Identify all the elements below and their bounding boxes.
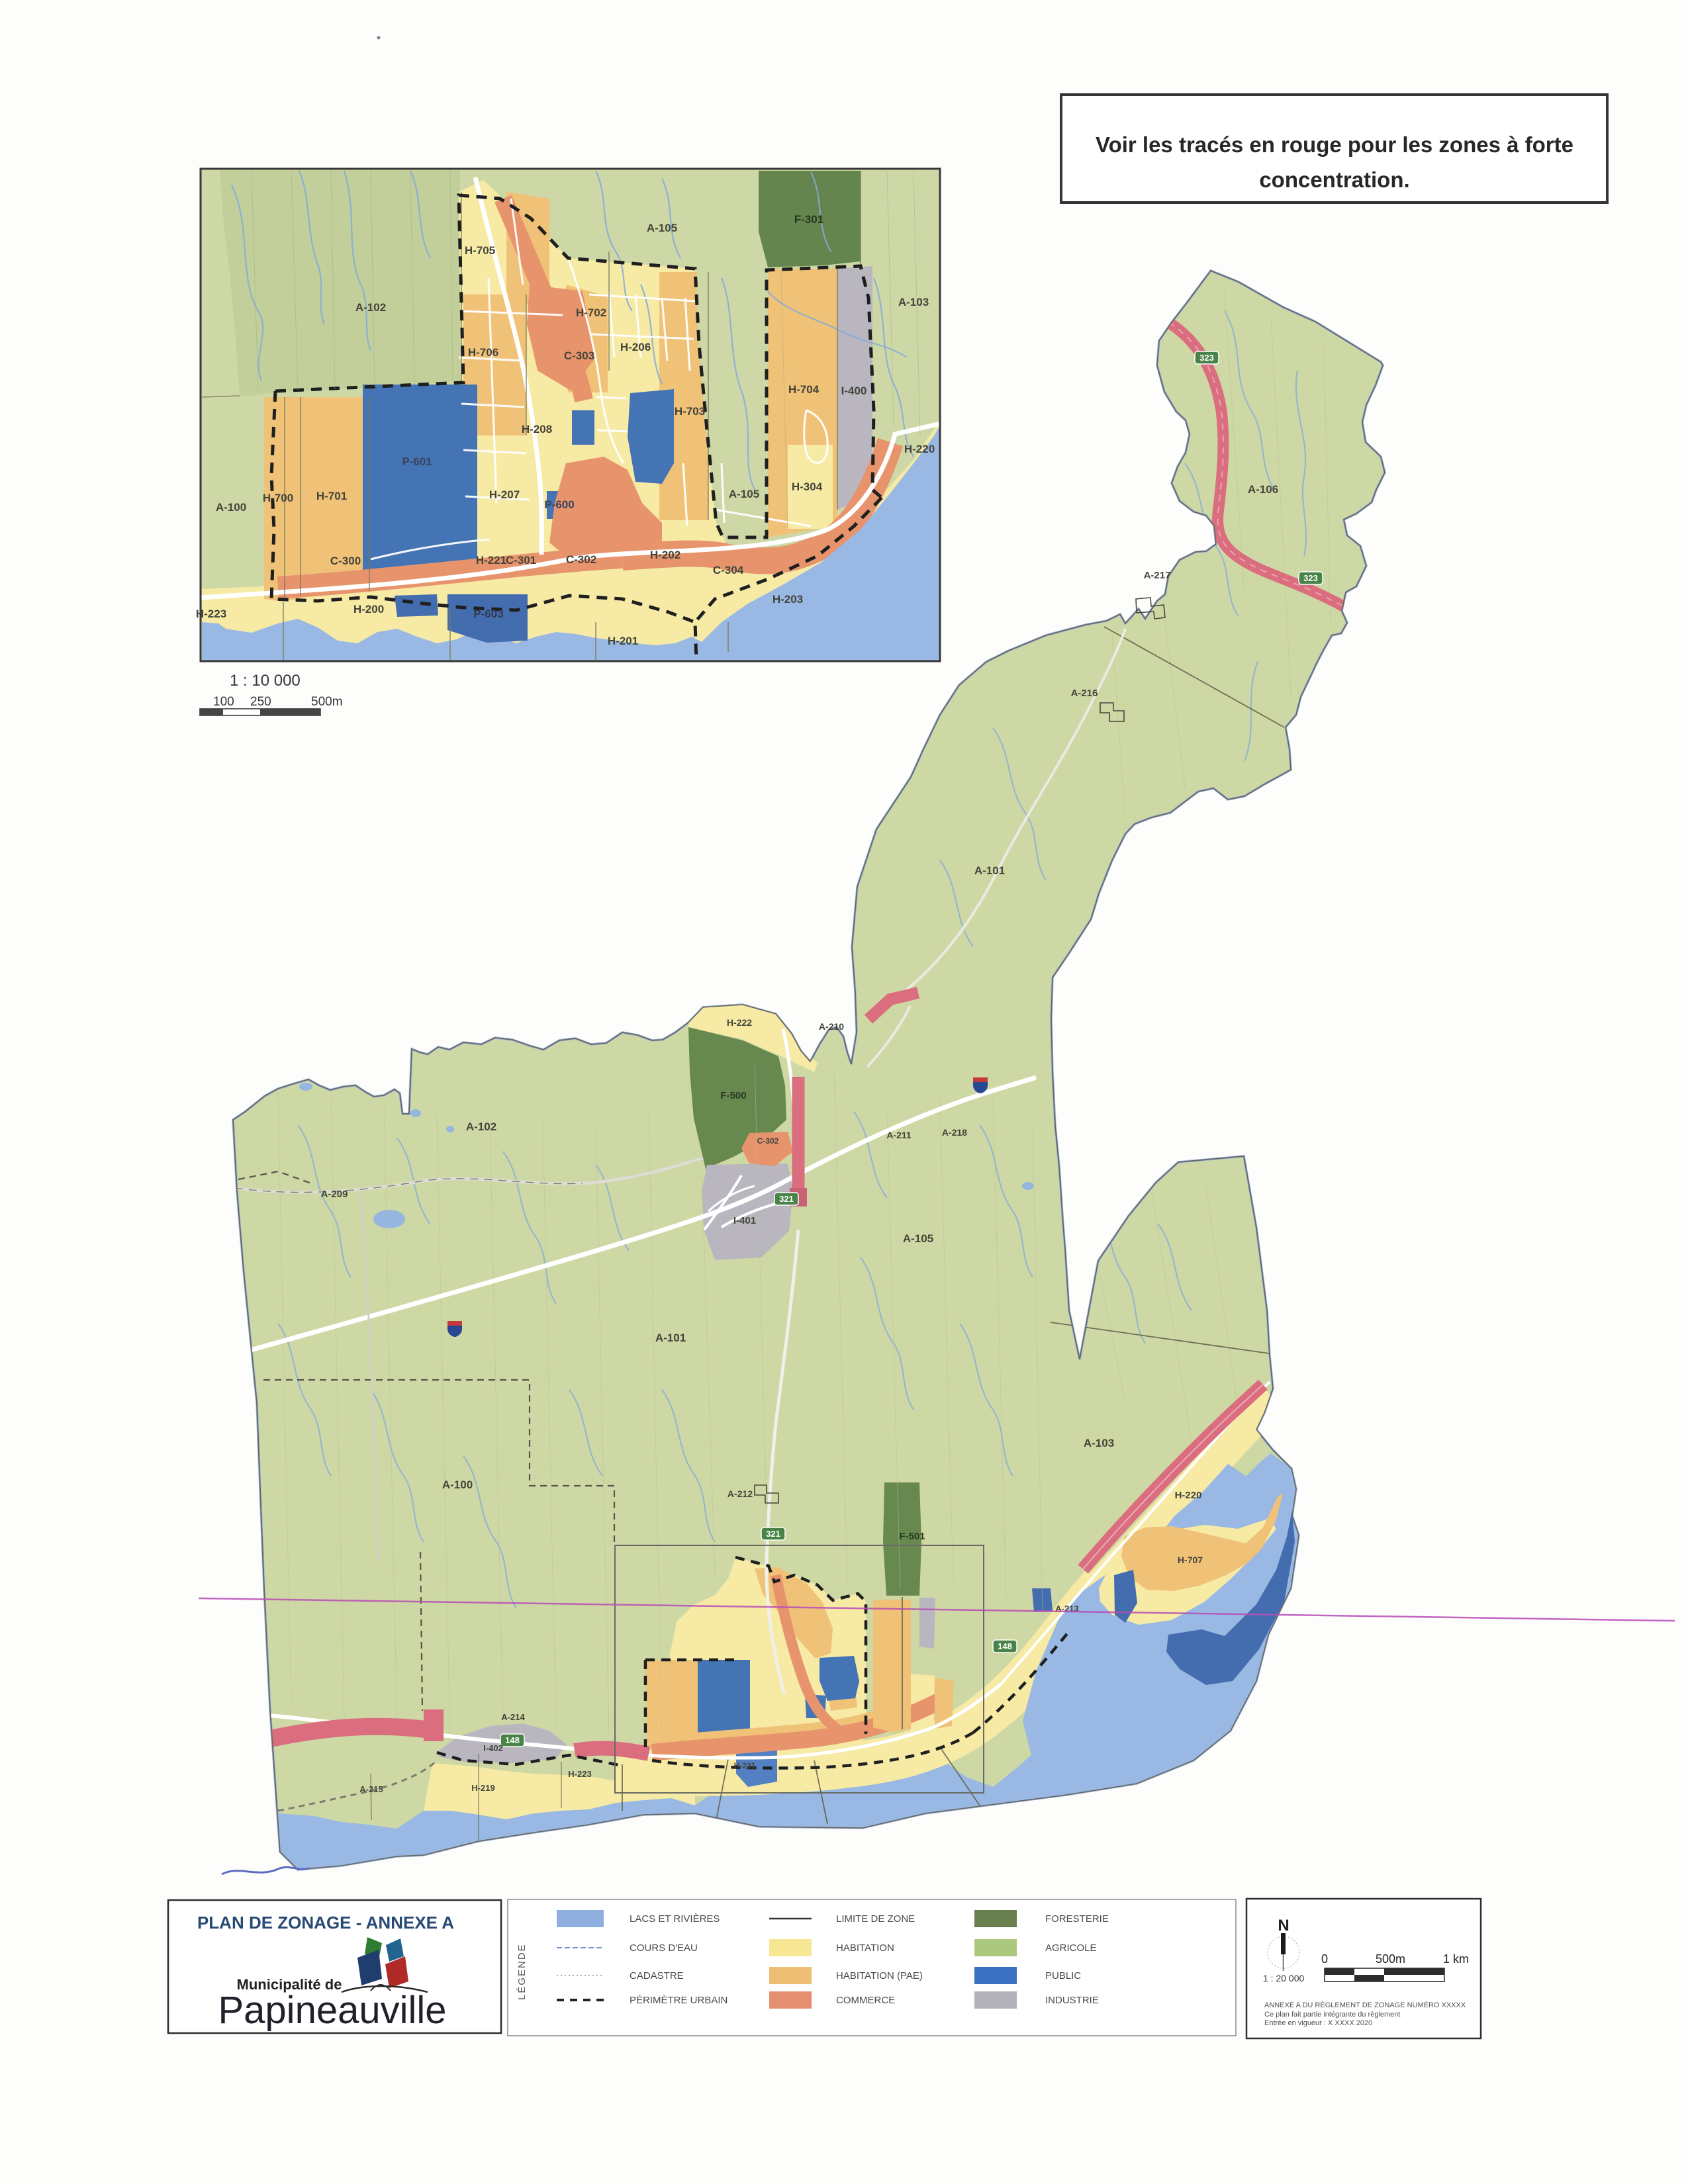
svg-text:N: N	[1278, 1917, 1289, 1934]
svg-text:0: 0	[1321, 1952, 1328, 1966]
svg-text:1 : 20 000: 1 : 20 000	[1263, 1973, 1304, 1983]
svg-text:CADASTRE: CADASTRE	[630, 1970, 684, 1981]
svg-text:LÉGENDE: LÉGENDE	[516, 1943, 528, 2000]
svg-text:HABITATION: HABITATION	[836, 1942, 894, 1954]
svg-text:LACS ET RIVIÈRES: LACS ET RIVIÈRES	[630, 1913, 720, 1925]
svg-text:FORESTERIE: FORESTERIE	[1045, 1913, 1109, 1925]
svg-text:PLAN DE ZONAGE - ANNEXE A: PLAN DE ZONAGE - ANNEXE A	[197, 1913, 454, 1933]
svg-text:COURS D'EAU: COURS D'EAU	[630, 1942, 698, 1954]
svg-text:INDUSTRIE: INDUSTRIE	[1045, 1995, 1099, 2006]
svg-text:PÉRIMÈTRE URBAIN: PÉRIMÈTRE URBAIN	[630, 1995, 727, 2006]
svg-text:PUBLIC: PUBLIC	[1045, 1970, 1081, 1981]
svg-text:Entrée en vigueur : X XXXX 202: Entrée en vigueur : X XXXX 2020	[1264, 2019, 1372, 2027]
svg-text:LIMITE DE ZONE: LIMITE DE ZONE	[836, 1913, 915, 1925]
svg-text:Ce plan fait partie intégrante: Ce plan fait partie intégrante du règlem…	[1264, 2011, 1400, 2019]
svg-text:HABITATION (PAE): HABITATION (PAE)	[836, 1970, 923, 1981]
svg-text:AGRICOLE: AGRICOLE	[1045, 1942, 1097, 1954]
svg-text:Papineauville: Papineauville	[218, 1989, 446, 2032]
svg-text:1 km: 1 km	[1443, 1952, 1469, 1966]
svg-text:500m: 500m	[1376, 1952, 1405, 1966]
svg-text:COMMERCE: COMMERCE	[836, 1995, 895, 2006]
svg-text:ANNEXE A DU RÈGLEMENT DE ZONAG: ANNEXE A DU RÈGLEMENT DE ZONAGE NUMÉRO X…	[1264, 2001, 1466, 2009]
